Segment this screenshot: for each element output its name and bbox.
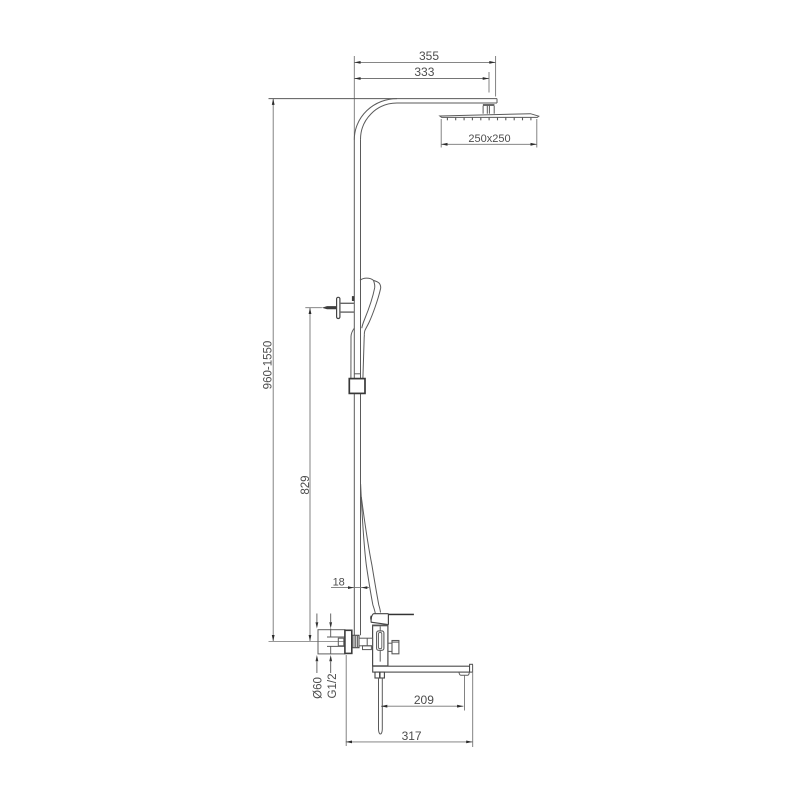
svg-text:18: 18 [333, 577, 345, 589]
svg-text:960-1550: 960-1550 [263, 341, 275, 390]
svg-text:G1/2: G1/2 [327, 674, 339, 699]
svg-text:333: 333 [414, 65, 434, 79]
svg-text:209: 209 [414, 693, 434, 707]
svg-text:Ø60: Ø60 [312, 677, 324, 699]
svg-text:829: 829 [300, 475, 312, 494]
svg-text:317: 317 [402, 729, 422, 743]
svg-text:250x250: 250x250 [468, 133, 510, 145]
svg-text:355: 355 [419, 49, 439, 63]
